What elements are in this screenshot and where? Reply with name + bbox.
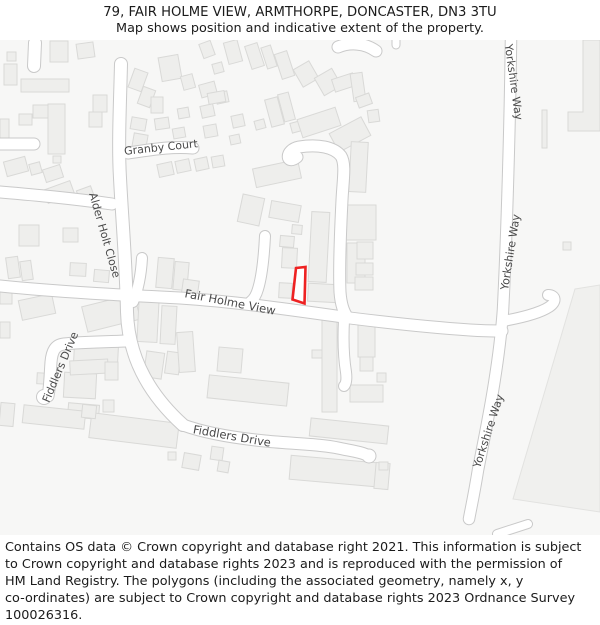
building [76, 42, 95, 59]
building [308, 212, 330, 283]
building [229, 134, 241, 145]
building [355, 277, 373, 290]
building [105, 362, 118, 380]
building [312, 350, 322, 358]
building [19, 114, 32, 125]
building [0, 402, 15, 426]
building [367, 109, 380, 122]
building [33, 105, 50, 118]
page-subtitle: Map shows position and indicative extent… [0, 21, 600, 37]
building [210, 446, 224, 461]
building [4, 64, 17, 85]
building [563, 242, 571, 250]
building [292, 225, 303, 235]
footer-line: 100026316. [5, 607, 595, 624]
building [211, 155, 225, 168]
building [160, 306, 177, 345]
building [360, 357, 373, 371]
footer-line: co-ordinates) are subject to Crown copyr… [5, 590, 595, 607]
footer-line: to Crown copyright and database rights 2… [5, 556, 595, 573]
map-canvas: Granby Court Alder Holt Close Fair Holme… [0, 40, 600, 535]
building [130, 117, 147, 131]
building [63, 372, 96, 399]
footer-line: Contains OS data © Crown copyright and d… [5, 539, 595, 556]
building [21, 79, 69, 92]
building [280, 235, 295, 247]
building [137, 300, 159, 343]
building [6, 256, 21, 278]
building [154, 117, 169, 130]
building [349, 142, 369, 193]
building [356, 263, 373, 275]
building [175, 159, 191, 174]
building [231, 114, 245, 128]
building [7, 52, 16, 61]
building [63, 228, 78, 242]
building [157, 162, 174, 178]
building [217, 347, 243, 373]
building [203, 124, 218, 138]
road-cul-de-sac [344, 320, 347, 386]
map-header: 79, FAIR HOLME VIEW, ARMTHORPE, DONCASTE… [0, 0, 600, 40]
page-title: 79, FAIR HOLME VIEW, ARMTHORPE, DONCASTE… [0, 4, 600, 21]
building [177, 331, 196, 372]
footer-line: HM Land Registry. The polygons (includin… [5, 573, 595, 590]
building [20, 260, 34, 280]
building [70, 263, 87, 277]
building [81, 404, 96, 418]
building [182, 453, 201, 471]
building [212, 62, 224, 74]
building [89, 112, 102, 127]
building [254, 119, 266, 130]
building [281, 248, 297, 269]
building [172, 127, 186, 139]
building [168, 452, 176, 460]
building [93, 95, 107, 112]
building [350, 385, 383, 402]
building [48, 104, 65, 154]
building [29, 162, 42, 175]
building [279, 283, 293, 299]
building [103, 400, 114, 412]
building [346, 205, 376, 240]
building [53, 156, 61, 163]
building [542, 110, 547, 148]
building [151, 97, 163, 113]
building [19, 225, 39, 246]
building [177, 107, 190, 119]
building [322, 320, 337, 412]
property-outline [293, 267, 306, 304]
building [94, 269, 110, 282]
building [207, 91, 226, 105]
building [0, 322, 10, 338]
building [357, 242, 373, 259]
building [200, 104, 215, 118]
building [156, 257, 175, 288]
building [217, 460, 230, 473]
building [377, 373, 386, 382]
building [379, 462, 388, 470]
building [194, 157, 209, 171]
copyright-footer: Contains OS data © Crown copyright and d… [0, 535, 600, 624]
building [158, 54, 182, 81]
building [50, 41, 68, 62]
road-stub-top-left [34, 43, 35, 66]
building [70, 359, 109, 375]
